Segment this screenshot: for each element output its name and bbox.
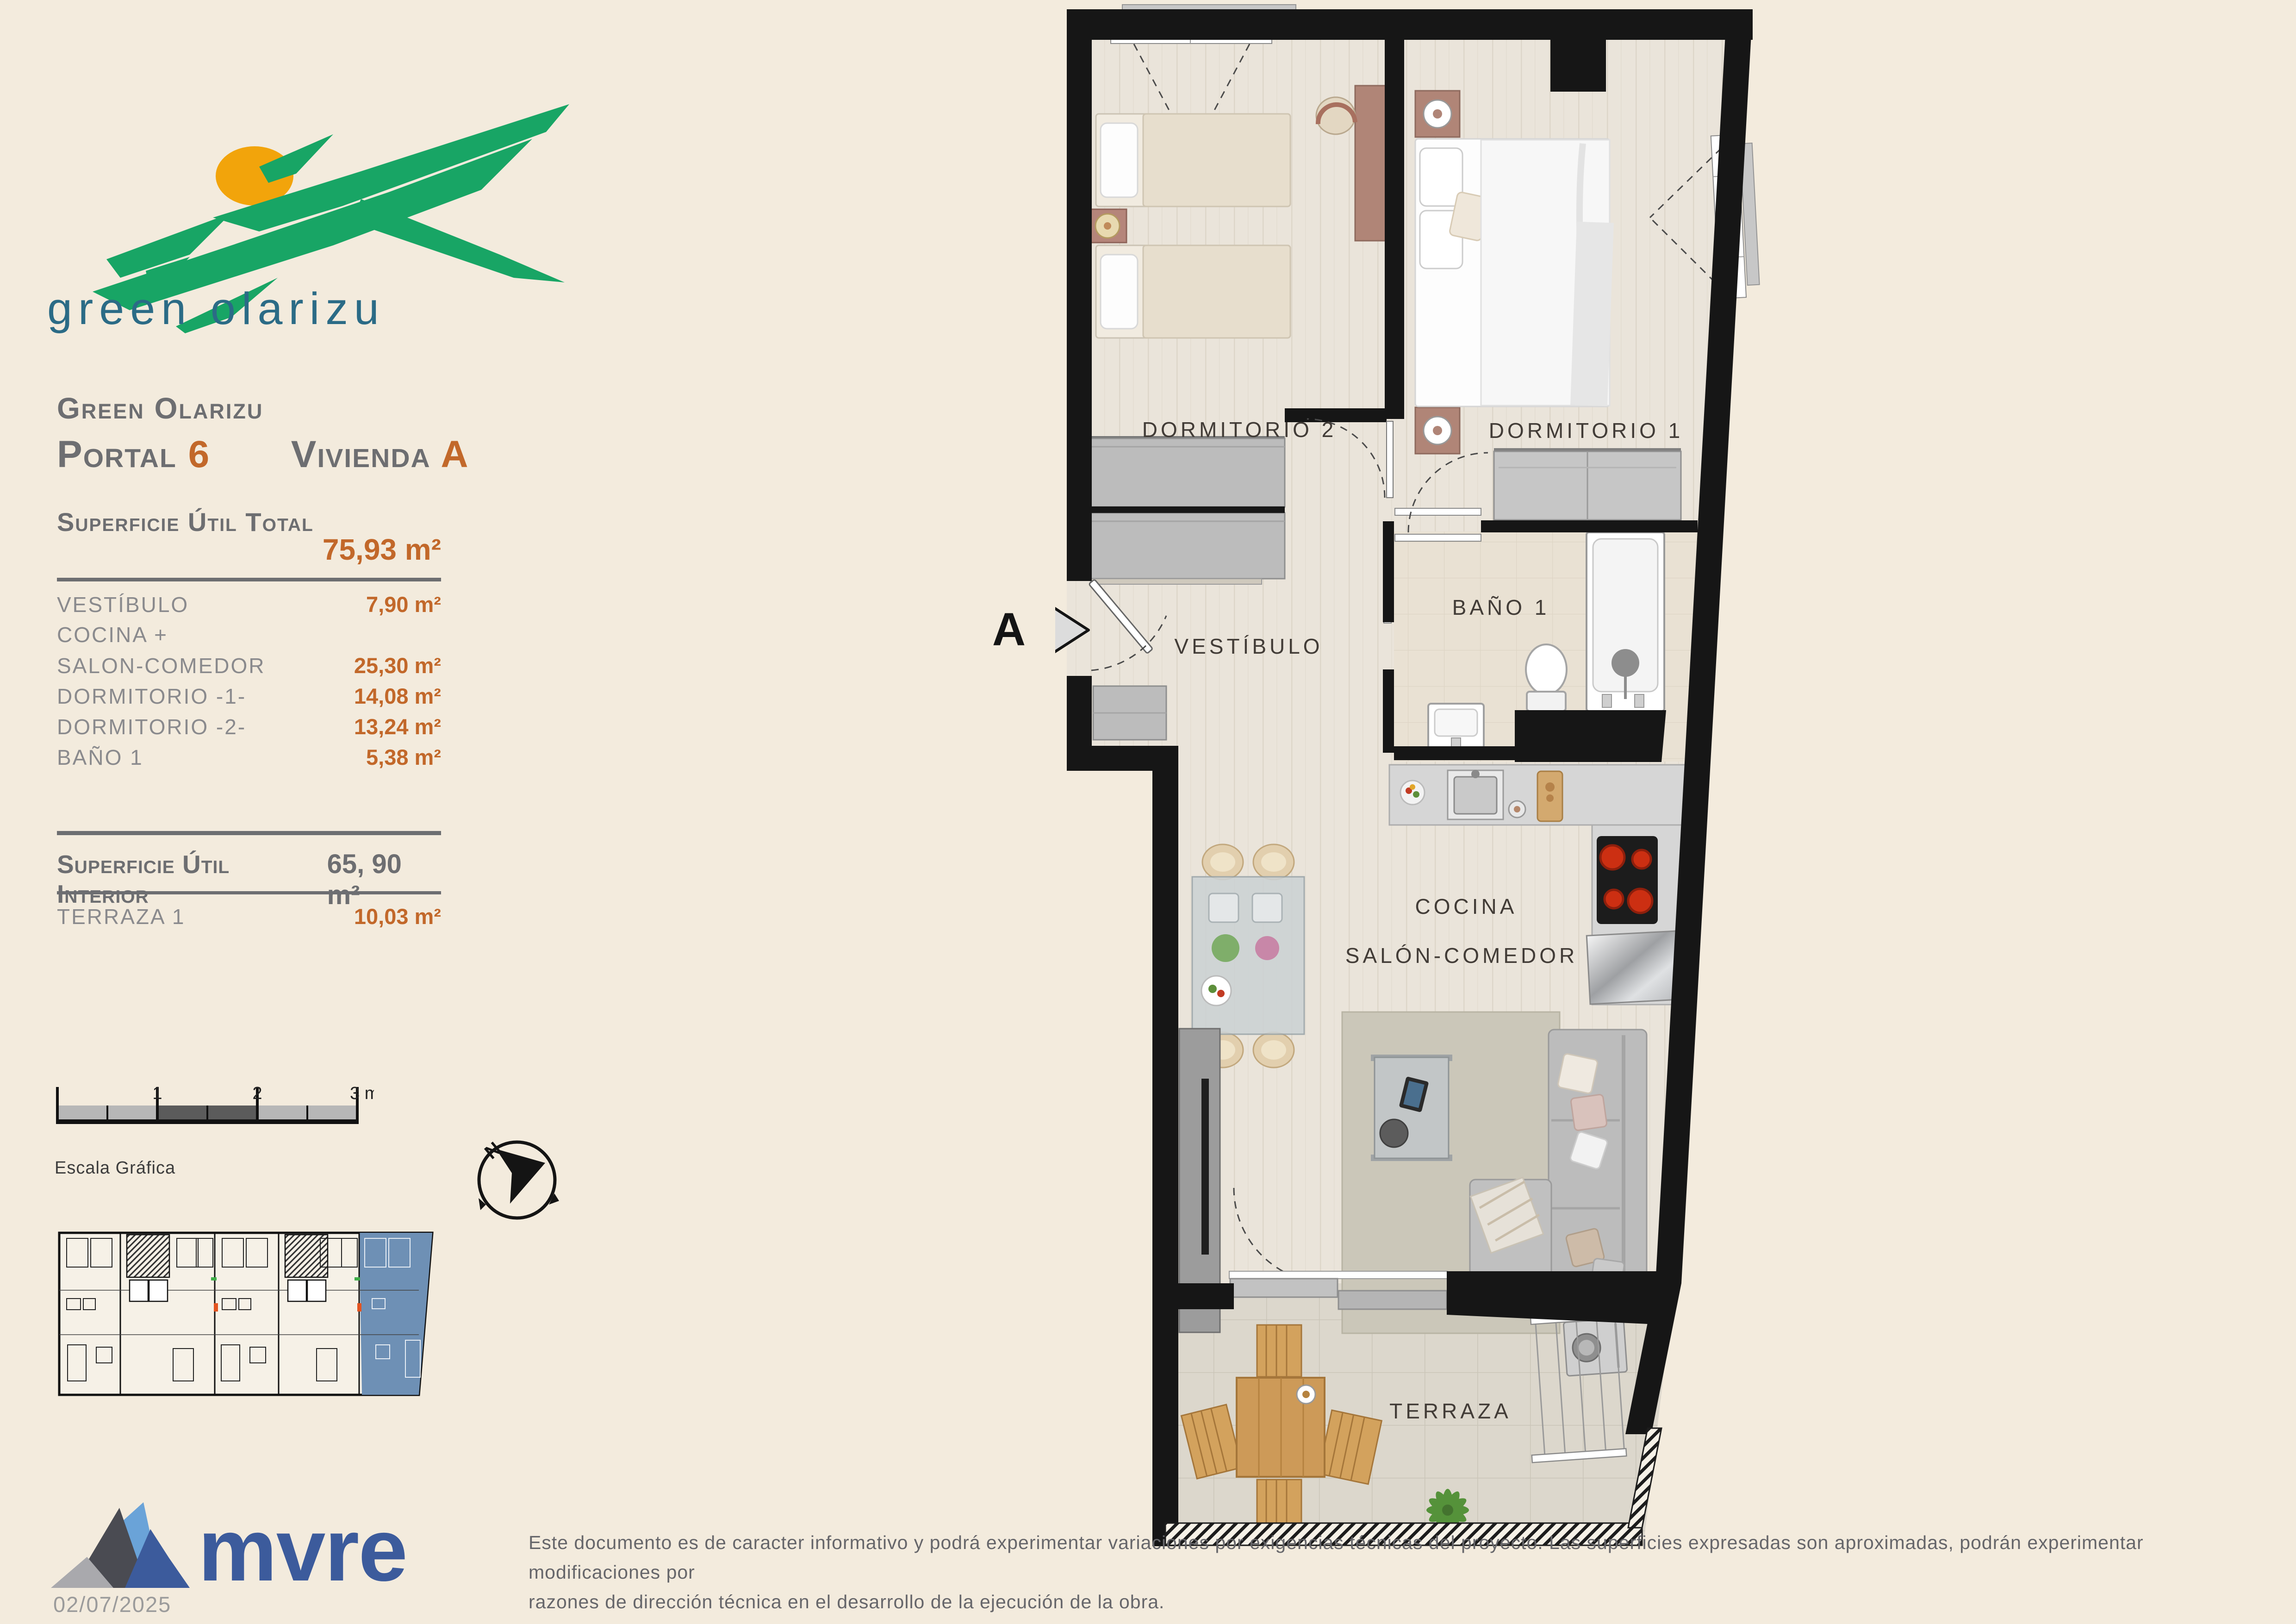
disclaimer-text: Este documento es de caracter informativ… xyxy=(529,1528,2278,1617)
tv xyxy=(1201,1079,1209,1255)
room-area-list: VESTÍBULO7,90 m² COCINA + SALON-COMEDOR2… xyxy=(57,592,441,775)
graphic-scale-bar: 1 2 3 m. xyxy=(50,1079,374,1153)
terraza-value: 10,03 m² xyxy=(354,904,441,929)
room-row-dorm2: DORMITORIO -2-13,24 m² xyxy=(57,714,441,744)
vivienda-label: Vivienda xyxy=(291,433,431,475)
fruit-plate xyxy=(1400,781,1425,805)
section-marker-letter: A xyxy=(992,603,1026,656)
terraza-label: TERRAZA 1 xyxy=(57,904,186,929)
label-vestibulo: VESTÍBULO xyxy=(1174,634,1323,659)
logo-wordmark: green olarizu xyxy=(47,283,385,334)
decor-bowl xyxy=(1380,1119,1408,1147)
divider-line xyxy=(57,891,441,894)
label-dormitorio1: DORMITORIO 1 xyxy=(1489,418,1684,443)
sliding-door-panel xyxy=(1338,1291,1447,1309)
room-row-salon: SALON-COMEDOR25,30 m² xyxy=(57,653,441,683)
portal-label: Portal xyxy=(57,433,177,475)
fridge xyxy=(1587,931,1680,1004)
kitchen-sink xyxy=(1454,777,1497,814)
toilet xyxy=(1526,644,1567,694)
scale-caption: Escala Gráfica xyxy=(55,1158,175,1178)
mvre-wordmark: mvre xyxy=(198,1505,407,1594)
terraza-row: TERRAZA 1 10,03 m² xyxy=(57,904,441,929)
disclaimer-line1: Este documento es de caracter informativ… xyxy=(529,1528,2278,1587)
document-date: 02/07/2025 xyxy=(53,1592,171,1617)
north-compass-icon: N xyxy=(472,1135,562,1225)
scale-labels: 1 2 3 m. xyxy=(152,1084,374,1103)
portal-number: 6 xyxy=(188,433,211,475)
mvre-logo-icon xyxy=(51,1502,190,1593)
compass-arrow xyxy=(496,1149,545,1204)
superficie-interior-value: 65, 90 m² xyxy=(327,849,441,911)
label-terraza: TERRAZA xyxy=(1389,1399,1512,1424)
label-salon-comedor: SALÓN-COMEDOR xyxy=(1345,943,1578,968)
project-title: Green Olarizu xyxy=(57,391,263,425)
room-row-vestibulo: VESTÍBULO7,90 m² xyxy=(57,592,441,622)
svg-text:1: 1 xyxy=(152,1084,162,1103)
divider-line xyxy=(57,831,441,835)
divider-line xyxy=(57,578,441,581)
superficie-interior-label: Superficie Útil Interior xyxy=(57,849,327,909)
floor-plan xyxy=(1055,2,1837,1576)
label-dormitorio2: DORMITORIO 2 xyxy=(1142,417,1337,442)
vivienda-letter: A xyxy=(441,433,469,475)
room-row-bano: BAÑO 15,38 m² xyxy=(57,744,441,775)
superficie-total-value: 75,93 m² xyxy=(57,532,441,567)
portal-vivienda-line: Portal 6 Vivienda A xyxy=(57,433,469,476)
green-olarizu-logo: green olarizu xyxy=(37,60,569,347)
room-row-cocina: COCINA + xyxy=(57,622,441,653)
disclaimer-line2: razones de dirección técnica en el desar… xyxy=(529,1587,2278,1617)
room-row-dorm1: DORMITORIO -1-14,08 m² xyxy=(57,683,441,714)
building-key-plan xyxy=(57,1229,436,1399)
superficie-interior-row: Superficie Útil Interior 65, 90 m² xyxy=(57,849,441,911)
sliding-door-panel xyxy=(1230,1279,1338,1297)
label-cocina: COCINA xyxy=(1415,894,1518,919)
label-bano1: BAÑO 1 xyxy=(1452,595,1550,620)
svg-text:3 m.: 3 m. xyxy=(350,1084,374,1103)
door-leaf xyxy=(1387,421,1393,498)
terrace-chair xyxy=(1257,1325,1301,1377)
svg-text:2: 2 xyxy=(252,1084,262,1103)
